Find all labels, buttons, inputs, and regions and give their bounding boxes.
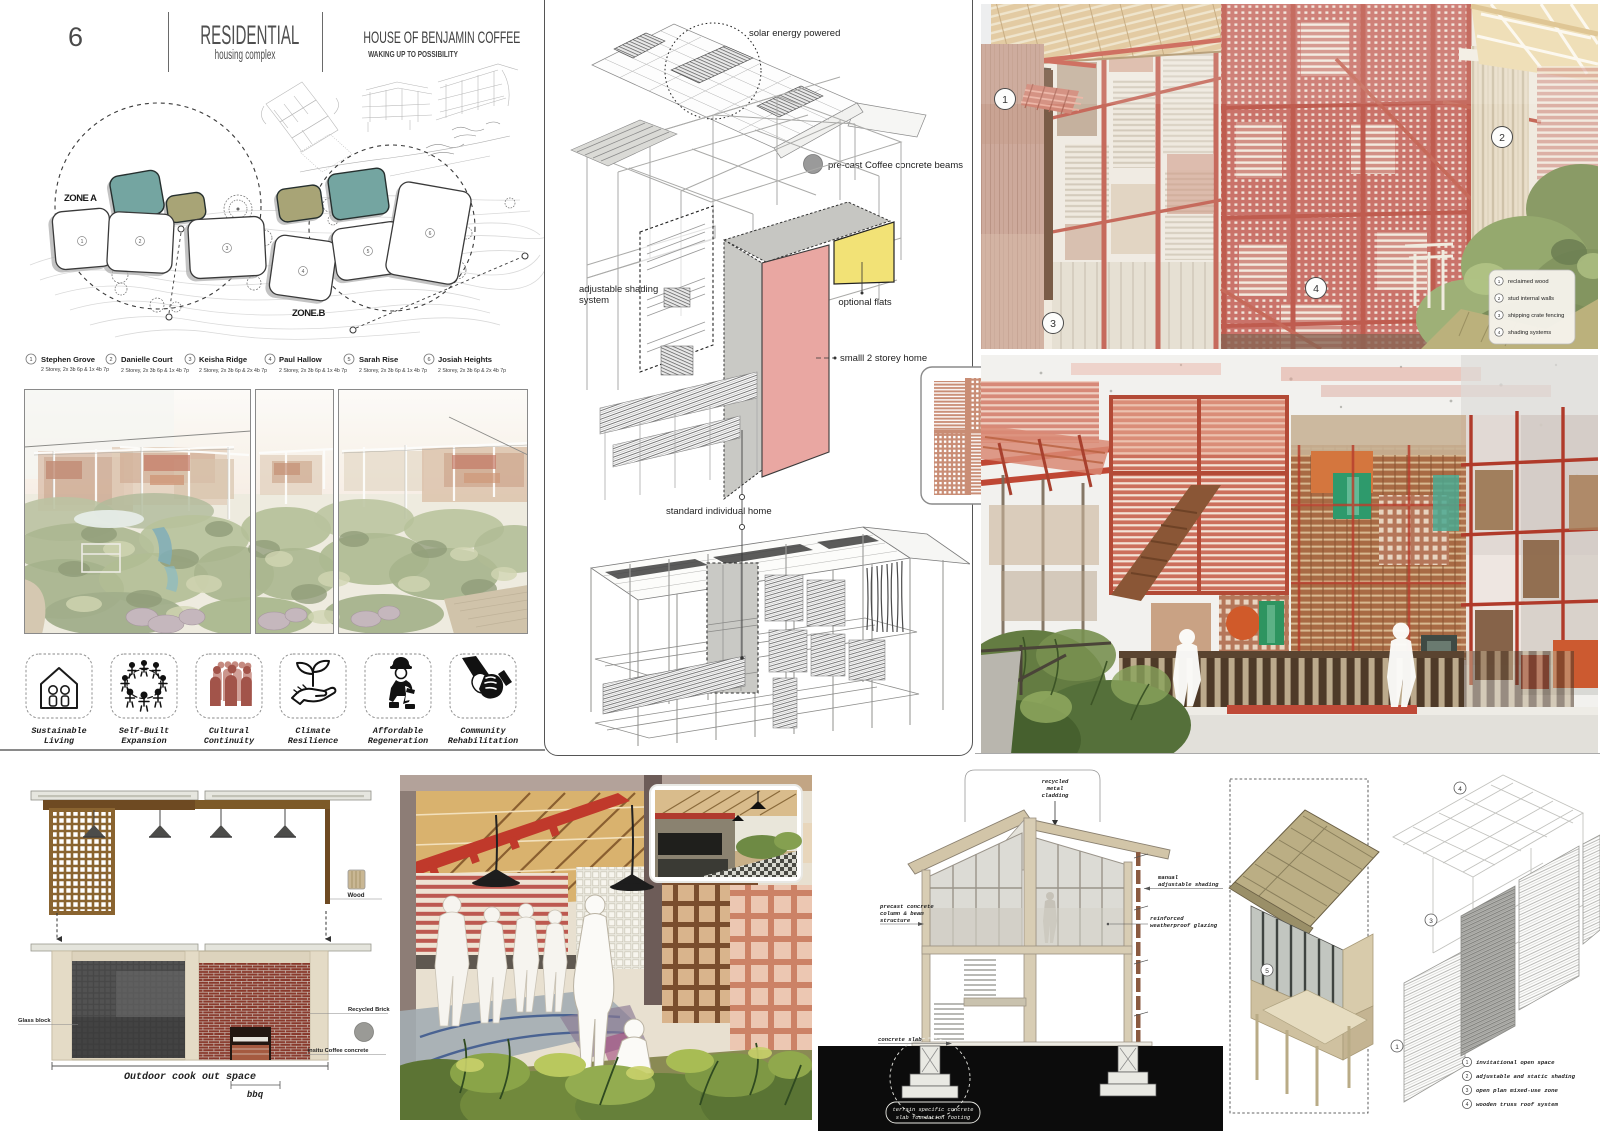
svg-text:3: 3 [226,246,229,252]
svg-text:4: 4 [1458,786,1462,793]
svg-text:Sarah Rise: Sarah Rise [359,355,398,364]
svg-text:Wood: Wood [347,892,364,899]
svg-text:Climate: Climate [295,726,330,736]
svg-text:Expansion: Expansion [121,736,166,746]
svg-text:3: 3 [1050,318,1056,330]
svg-text:4: 4 [1466,1102,1469,1108]
svg-text:2 Storey, 2x 3b 6p & 1x 4b 7p: 2 Storey, 2x 3b 6p & 1x 4b 7p [279,368,347,374]
svg-text:Danielle Court: Danielle Court [121,355,173,364]
svg-text:precast concrete: precast concrete [879,903,934,910]
svg-text:pre-cast Coffee concrete beams: pre-cast Coffee concrete beams [828,160,963,171]
svg-text:column & beam: column & beam [880,910,924,917]
svg-text:insitu Coffee concrete: insitu Coffee concrete [308,1048,370,1054]
svg-text:Stephen Grove: Stephen Grove [41,355,95,364]
svg-text:2 Storey, 2x 3b 6p & 2x 4b 7p: 2 Storey, 2x 3b 6p & 2x 4b 7p [438,368,506,374]
svg-text:stud internal walls: stud internal walls [1508,296,1554,302]
svg-text:Rehabilitation: Rehabilitation [448,736,518,746]
svg-text:2: 2 [1498,296,1501,301]
svg-text:invitational open space: invitational open space [1476,1059,1555,1066]
svg-text:2: 2 [1466,1074,1469,1080]
svg-text:Living: Living [44,736,74,746]
svg-text:slab foundation footing: slab foundation footing [896,1115,971,1121]
svg-text:6: 6 [427,357,430,363]
svg-text:5: 5 [347,357,350,363]
svg-text:1: 1 [1395,1044,1399,1051]
svg-text:4: 4 [302,269,305,275]
svg-text:open plan mixed-use zone: open plan mixed-use zone [1476,1087,1559,1094]
svg-text:ZONE.B: ZONE.B [292,308,326,319]
svg-text:reclaimed wood: reclaimed wood [1508,279,1549,285]
svg-text:3: 3 [1498,313,1501,318]
svg-text:1: 1 [1002,94,1008,106]
svg-text:structure: structure [880,917,911,924]
svg-text:Regeneration: Regeneration [368,736,428,746]
svg-text:adjustable shading: adjustable shading [579,284,658,295]
svg-text:adjustable and static shading: adjustable and static shading [1476,1073,1576,1080]
svg-text:3: 3 [1429,918,1433,925]
svg-text:3: 3 [1466,1088,1469,1094]
svg-text:concrete slab: concrete slab [878,1036,922,1043]
svg-text:system: system [579,295,609,306]
svg-text:Sustainable: Sustainable [31,726,86,736]
svg-text:2: 2 [1499,132,1505,144]
svg-text:4: 4 [268,357,271,363]
svg-text:metal: metal [1046,785,1064,792]
svg-text:Josiah Heights: Josiah Heights [438,355,492,364]
svg-text:reinforced: reinforced [1150,915,1184,922]
svg-text:cladding: cladding [1042,792,1069,799]
svg-text:1: 1 [29,357,32,363]
svg-text:Outdoor cook out space: Outdoor cook out space [124,1071,256,1083]
svg-text:smalll 2 storey home: smalll 2 storey home [840,353,927,364]
svg-text:2: 2 [109,357,112,363]
svg-text:Self-Built: Self-Built [119,726,169,736]
svg-text:5: 5 [367,249,370,255]
svg-text:1: 1 [81,239,84,245]
svg-text:Resilience: Resilience [288,736,338,746]
svg-text:shading systems: shading systems [1508,330,1551,336]
svg-text:Keisha Ridge: Keisha Ridge [199,355,247,364]
svg-text:3: 3 [188,357,191,363]
svg-text:bbq: bbq [247,1090,264,1100]
svg-text:1: 1 [1498,279,1501,284]
svg-text:Cultural: Cultural [209,726,249,736]
svg-text:recycled: recycled [1042,778,1069,785]
svg-text:2 Storey, 2x 3b 6p & 1x 4b 7p: 2 Storey, 2x 3b 6p & 1x 4b 7p [41,367,109,373]
svg-text:Recycled Brick: Recycled Brick [348,1007,390,1013]
svg-text:Paul Hallow: Paul Hallow [279,355,322,364]
svg-text:weatherproof glazing: weatherproof glazing [1150,922,1218,929]
svg-text:manual: manual [1157,874,1178,881]
svg-text:Affordable: Affordable [372,726,423,736]
svg-text:wooden truss roof system: wooden truss roof system [1476,1101,1559,1108]
svg-text:Continuity: Continuity [204,736,255,746]
svg-text:2: 2 [139,239,142,245]
svg-text:4: 4 [1313,283,1319,295]
svg-text:4: 4 [1498,330,1501,335]
svg-text:shipping crate fencing: shipping crate fencing [1508,313,1564,319]
svg-text:ZONE A: ZONE A [64,193,97,204]
svg-text:Glass block: Glass block [18,1018,51,1024]
svg-text:2 Storey, 2x 3b 6p & 2x 4b 7p: 2 Storey, 2x 3b 6p & 2x 4b 7p [199,368,267,374]
svg-text:optional flats: optional flats [838,297,892,308]
svg-text:2 Storey, 2x 3b 6p & 1x 4b 7p: 2 Storey, 2x 3b 6p & 1x 4b 7p [359,368,427,374]
svg-text:2 Storey, 2x 3b 6p & 1x 4b 7p: 2 Storey, 2x 3b 6p & 1x 4b 7p [121,368,189,374]
svg-text:1: 1 [1466,1060,1469,1066]
svg-text:solar energy powered: solar energy powered [749,28,840,39]
svg-text:5: 5 [1265,968,1269,975]
svg-text:adjustable shading: adjustable shading [1158,881,1219,888]
svg-text:6: 6 [429,231,432,237]
svg-text:terrain specific concrete: terrain specific concrete [893,1107,974,1113]
svg-text:Community: Community [460,726,506,736]
